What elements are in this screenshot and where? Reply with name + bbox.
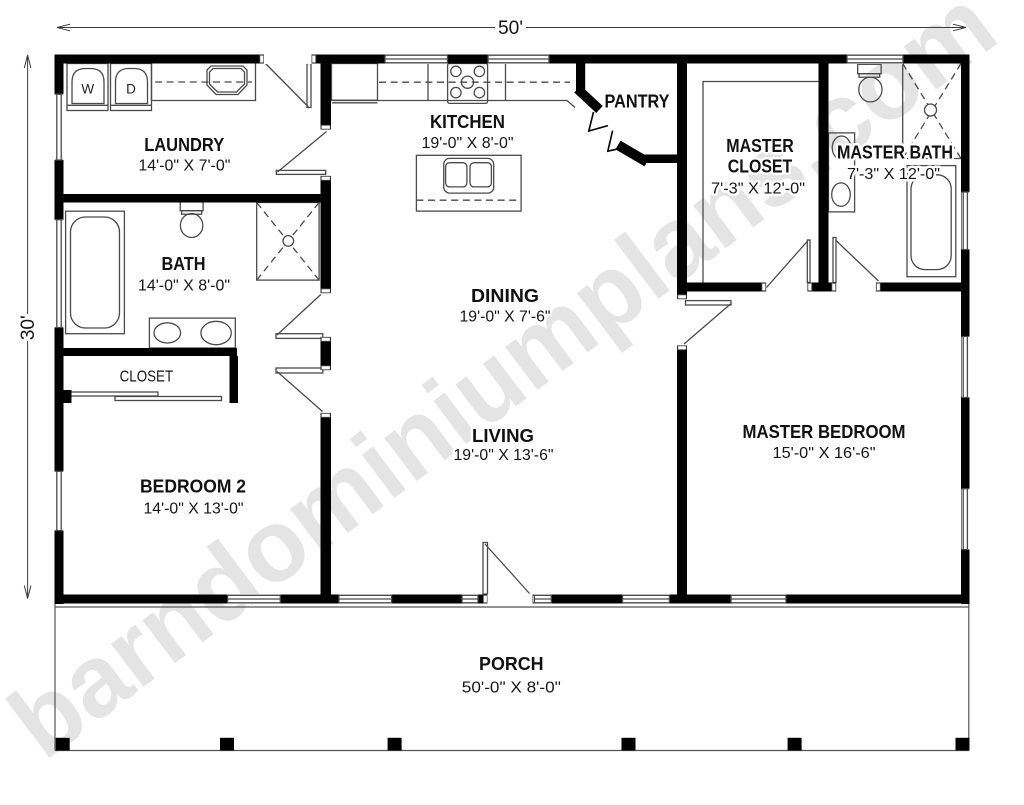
svg-text:19'-0" X 7'-6": 19'-0" X 7'-6"	[460, 308, 551, 325]
svg-text:LIVING: LIVING	[472, 426, 534, 446]
svg-text:14'-0" X 7'-0": 14'-0" X 7'-0"	[138, 157, 230, 174]
svg-text:LAUNDRY: LAUNDRY	[144, 135, 224, 155]
svg-text:MASTER BEDROOM: MASTER BEDROOM	[743, 422, 906, 442]
svg-text:D: D	[126, 82, 136, 97]
svg-text:MASTER: MASTER	[726, 136, 794, 156]
svg-text:7'-3" X 12'-0": 7'-3" X 12'-0"	[847, 166, 940, 183]
svg-text:MASTER BATH: MASTER BATH	[837, 143, 953, 163]
svg-text:7'-3" X 12'-0": 7'-3" X 12'-0"	[711, 180, 805, 197]
svg-text:BEDROOM 2: BEDROOM 2	[140, 477, 246, 497]
svg-text:DINING: DINING	[471, 286, 539, 306]
svg-text:W: W	[81, 82, 94, 97]
svg-text:30': 30'	[18, 315, 39, 340]
svg-text:14'-0" X 13'-0": 14'-0" X 13'-0"	[144, 500, 244, 517]
svg-text:50'-0" X 8'-0": 50'-0" X 8'-0"	[462, 679, 561, 696]
svg-text:BATH: BATH	[162, 254, 206, 274]
svg-text:PANTRY: PANTRY	[605, 92, 670, 112]
svg-text:19'-0" X 13'-6": 19'-0" X 13'-6"	[454, 447, 554, 464]
svg-text:KITCHEN: KITCHEN	[430, 112, 505, 132]
svg-text:PORCH: PORCH	[479, 654, 544, 674]
svg-text:50': 50'	[498, 18, 523, 39]
svg-text:19'-0" X 8'-0": 19'-0" X 8'-0"	[422, 135, 514, 152]
svg-text:14'-0" X 8'-0": 14'-0" X 8'-0"	[138, 277, 230, 294]
svg-text:15'-0" X 16'-6": 15'-0" X 16'-6"	[773, 445, 876, 462]
svg-text:CLOSET: CLOSET	[728, 157, 793, 177]
svg-text:CLOSET: CLOSET	[120, 368, 174, 385]
